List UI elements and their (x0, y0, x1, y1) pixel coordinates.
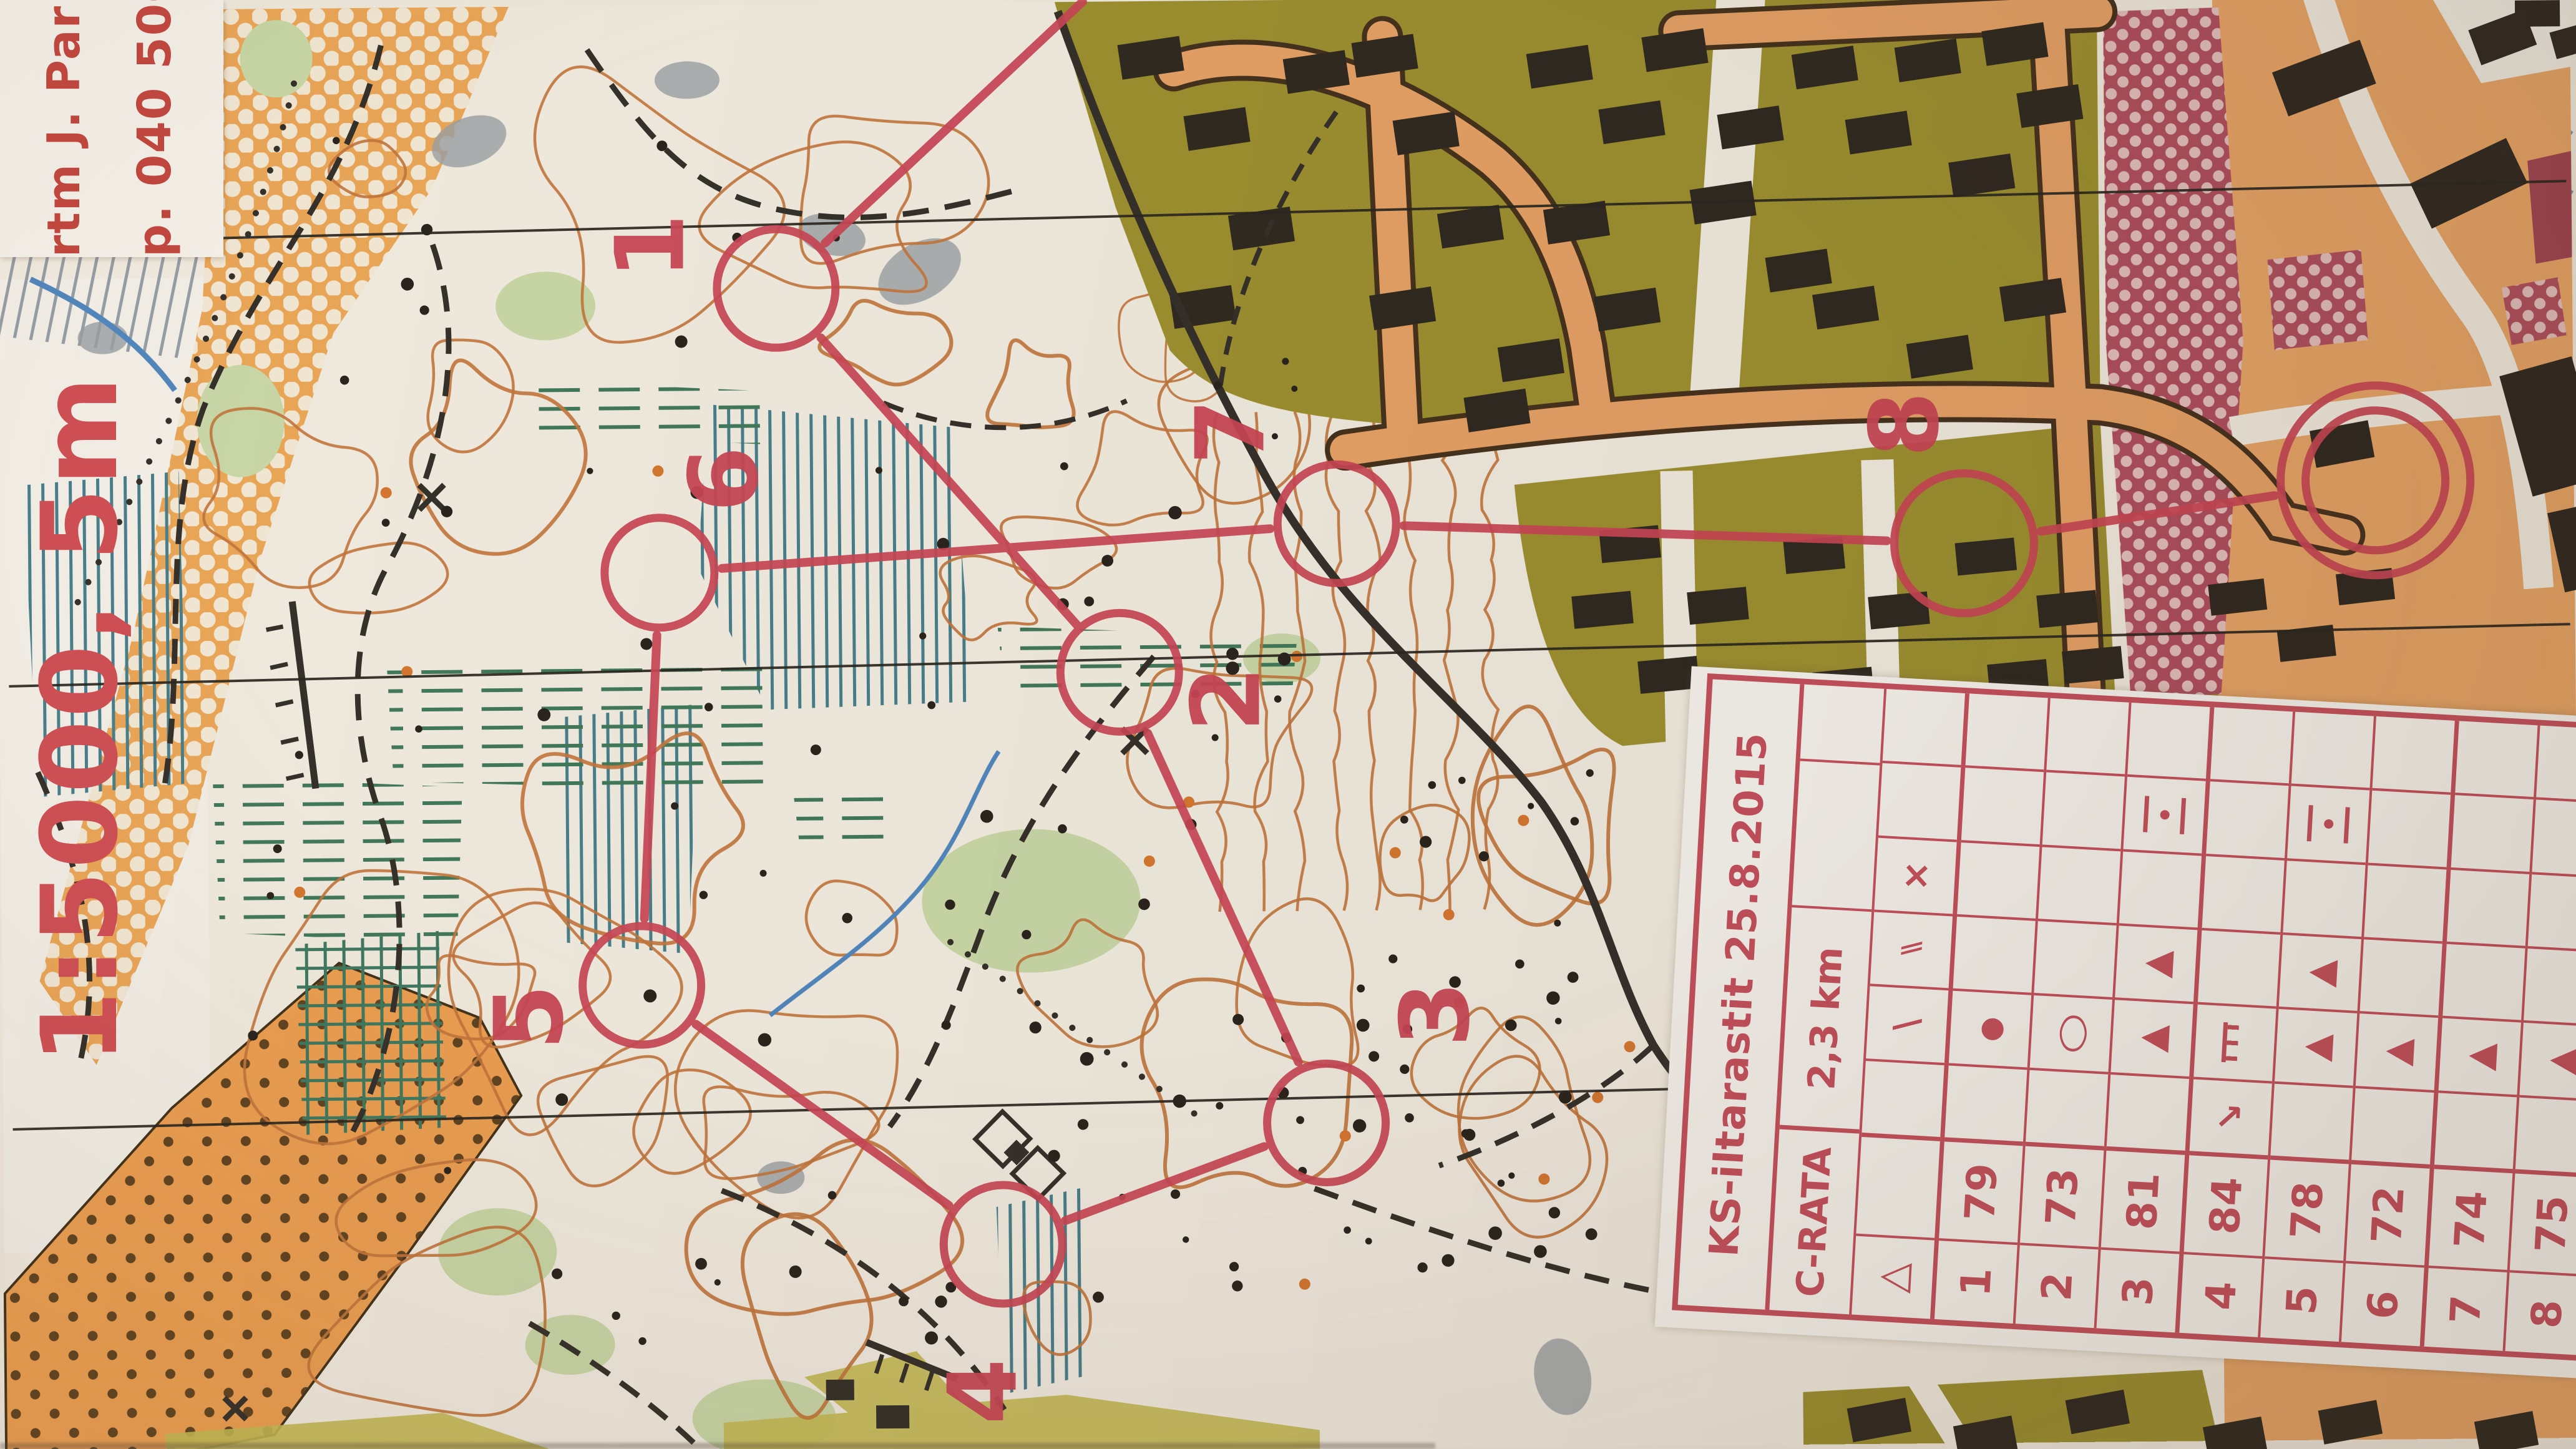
card-symbol-empty (2372, 716, 2454, 795)
card-symbol-empty (2359, 939, 2442, 1018)
control-number-6: 6 (669, 446, 779, 512)
card-symbol-boulder: ▲ (2275, 1009, 2357, 1088)
control-number-4: 4 (928, 1359, 1038, 1425)
card-symbol-empty (1861, 1061, 1944, 1141)
card-control-number: 2 (2016, 1245, 2099, 1328)
card-control-number: 4 (2179, 1254, 2262, 1337)
card-symbol-boulder: ▲ (2110, 1000, 2193, 1079)
card-control-code: 78 (2265, 1159, 2349, 1263)
building (1687, 587, 1749, 625)
card-control-code (1856, 1137, 1940, 1241)
control-number-2: 2 (1171, 666, 1282, 732)
card-control-number: 7 (2424, 1268, 2507, 1351)
card-symbol-arrow: ↘ (2189, 1079, 2272, 1159)
card-symbol-knoll: ● (1949, 991, 2031, 1070)
card-symbol-empty (2515, 1097, 2576, 1178)
control-number-7: 7 (1176, 399, 1286, 465)
card-course-length: 2,3 km (1780, 907, 1872, 1134)
card-control-number: 3 (2097, 1250, 2180, 1333)
paper-edge-shadow (0, 1443, 1435, 1449)
card-symbol-boulder: ▲ (2519, 1023, 2576, 1101)
card-symbol-empty (1961, 768, 2044, 847)
card-symbol-boulder: ▲ (2279, 935, 2361, 1013)
card-symbol-boulder: ▲ (2438, 1018, 2520, 1097)
card-course-name: C-RATA (1769, 1129, 1859, 1314)
card-symbol-double-slash: \\ (1870, 912, 1953, 990)
card-symbol-fence (2193, 1005, 2276, 1083)
attribution-box: rtm J. Par p. 040 500 (0, 0, 223, 257)
control-number-8: 8 (1850, 391, 1960, 457)
card-symbol-empty (1878, 763, 1961, 842)
card-symbol-slash: \ (1866, 987, 1948, 1065)
card-symbol-empty (2524, 949, 2576, 1027)
card-control-code: 73 (2020, 1146, 2104, 1250)
card-symbol-empty (2447, 870, 2529, 949)
card-symbol-empty (2046, 698, 2129, 777)
card-symbol-empty (2442, 944, 2525, 1023)
card-symbol-boulder: ▲ (2115, 925, 2197, 1004)
building (2208, 578, 2267, 616)
attribution-line1: rtm J. Par (37, 5, 90, 257)
control-description-card: KS-iltarastit 25.8.2015 C-RATA 2,3 km △\… (1655, 666, 2576, 1378)
card-control-number: 8 (2505, 1272, 2576, 1355)
card-control-number: △ (1851, 1236, 1934, 1319)
map-photo: rtm J. Par p. 040 500 1:5000, 5m 1234567… (0, 0, 2576, 1449)
scale-label: 1:5000, 5m (19, 374, 141, 1064)
building (2062, 646, 2124, 684)
attribution-line2: p. 040 500 (128, 0, 182, 257)
card-symbol-empty (2198, 930, 2280, 1009)
card-symbol-depression: ○ (2029, 995, 2112, 1074)
card-symbol-empty (1883, 689, 1965, 768)
card-control-code: 79 (1939, 1141, 2023, 1245)
control-number-3: 3 (1380, 981, 1491, 1047)
card-control-number: 6 (2341, 1264, 2424, 1347)
card-symbol-empty (2291, 712, 2374, 791)
card-header-empty (1792, 761, 1880, 912)
card-control-code: 72 (2346, 1164, 2430, 1268)
card-symbol-empty (2434, 1093, 2517, 1173)
card-symbol-between (2123, 777, 2205, 856)
card-symbol-empty (2119, 851, 2202, 930)
card-symbol-empty (1965, 693, 2047, 772)
card-symbol-empty (2351, 1088, 2434, 1169)
card-symbol-empty (2034, 921, 2116, 1000)
card-symbol-empty (2536, 726, 2576, 804)
card-symbol-empty (2202, 856, 2284, 935)
card-symbol-empty (2210, 707, 2293, 786)
card-symbol-empty (2106, 1075, 2189, 1155)
card-symbol-empty (1944, 1065, 2027, 1146)
card-symbol-empty (2368, 791, 2451, 869)
card-symbol-empty (2026, 1070, 2109, 1150)
card-control-code: 81 (2101, 1151, 2185, 1254)
card-symbol-empty (2532, 800, 2576, 879)
card-symbol-boulder: ▲ (2356, 1013, 2438, 1092)
card-control-code: 84 (2183, 1155, 2268, 1259)
building (2036, 590, 2099, 628)
card-symbol-empty (2451, 795, 2533, 874)
building (1955, 538, 2017, 576)
card-symbol-empty (2364, 865, 2446, 944)
card-symbol-empty (2270, 1083, 2353, 1164)
card-symbol-empty (2528, 874, 2576, 953)
card-control-number: 1 (1934, 1241, 2017, 1324)
card-symbol-empty (2455, 721, 2537, 799)
card-symbol-between (2287, 786, 2369, 865)
card-header-empty (1800, 685, 1885, 766)
card-symbol-empty (2127, 703, 2210, 781)
card-symbol-empty (2042, 773, 2124, 851)
building (1571, 591, 1634, 629)
card-symbol-cross: × (1874, 837, 1956, 916)
card-control-number: 5 (2260, 1259, 2343, 1342)
control-number-5: 5 (474, 984, 585, 1050)
card-symbol-empty (1953, 917, 2035, 995)
control-number-1: 1 (595, 213, 706, 280)
control-description-table: KS-iltarastit 25.8.2015 C-RATA 2,3 km △\… (1672, 673, 2576, 1362)
card-symbol-empty (2038, 847, 2120, 925)
card-control-code: 75 (2510, 1173, 2576, 1277)
card-symbol-empty (2206, 782, 2288, 861)
card-control-code: 74 (2429, 1169, 2513, 1272)
card-symbol-empty (2283, 861, 2365, 939)
card-symbol-empty (1957, 842, 2039, 921)
